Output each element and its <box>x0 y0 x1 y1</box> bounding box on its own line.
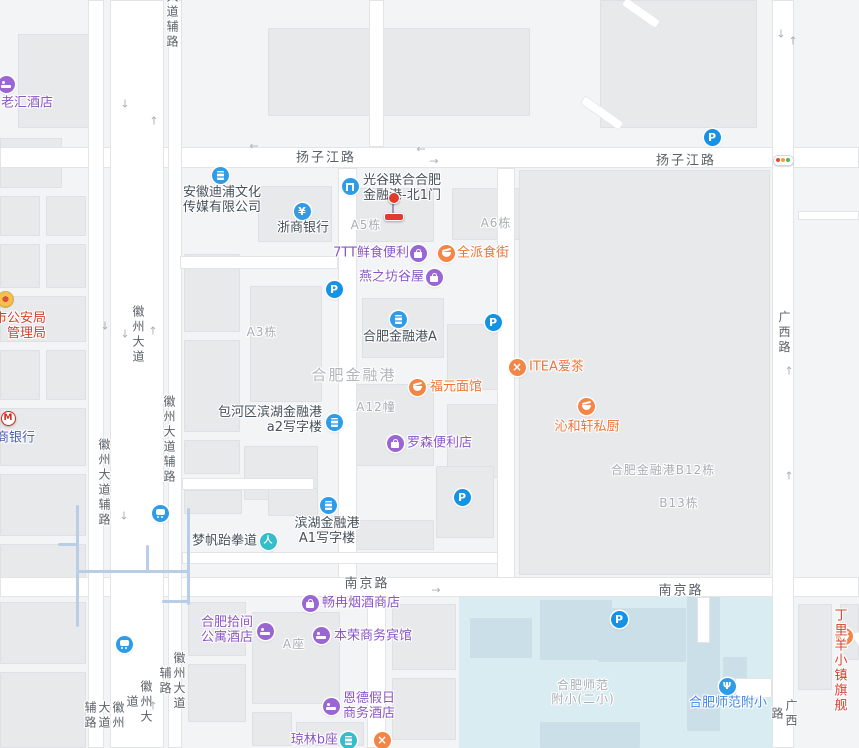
food-bowl-icon[interactable] <box>578 398 595 415</box>
metro-icon[interactable] <box>116 636 133 653</box>
road-label: 徽州大道辅路 <box>162 395 176 485</box>
poi-label[interactable]: 老汇酒店 <box>1 96 53 111</box>
building-block <box>46 196 86 236</box>
construction-line <box>76 505 79 627</box>
road <box>168 0 182 748</box>
poi-label[interactable]: 滨湖金融港 A1写字楼 <box>294 516 359 546</box>
building-label: A3栋 <box>247 325 278 339</box>
road-label: 扬子江路 <box>656 154 716 169</box>
poi-label[interactable]: 招商银行 <box>0 431 35 446</box>
building-label: A12幢 <box>356 400 395 414</box>
school-building <box>540 722 640 748</box>
building-block <box>392 678 456 740</box>
parking-icon[interactable]: P <box>485 314 502 331</box>
road <box>798 211 859 220</box>
direction-arrow-left: ← <box>249 141 258 152</box>
office-building-icon[interactable] <box>390 311 407 328</box>
poi-label[interactable]: 恩德假日 商务酒店 <box>343 691 395 721</box>
road-label: 广西路 <box>770 697 798 731</box>
building-label: 合肥金融港 <box>311 368 396 382</box>
direction-arrow-up: ↑ <box>784 471 793 482</box>
poi-label[interactable]: ITEA爱茶 <box>529 360 584 375</box>
building-label: A6栋 <box>481 216 512 230</box>
poi-label[interactable]: 包河区滨湖金融港 a2写字楼 <box>218 405 322 435</box>
parking-icon[interactable]: P <box>454 489 471 506</box>
direction-arrow-right: → <box>429 156 438 167</box>
road-label: 徽州大道辅路 <box>83 700 125 732</box>
poi-label[interactable]: 合肥金融港A <box>363 330 437 345</box>
parking-icon[interactable]: P <box>326 281 343 298</box>
direction-arrow-up: ↑ <box>149 116 158 127</box>
parking-icon[interactable]: P <box>611 611 628 628</box>
shop-bag-icon[interactable] <box>426 269 443 286</box>
building-block <box>18 34 90 128</box>
poi-label[interactable]: 合肥师范附小 <box>689 696 767 711</box>
shop-bag-icon[interactable] <box>302 595 319 612</box>
direction-arrow-down: ↓ <box>119 511 128 522</box>
direction-arrow-down: ↓ <box>120 99 129 110</box>
building-block <box>250 286 322 402</box>
building-block <box>184 490 242 514</box>
building-label: A座 <box>283 637 305 651</box>
road-label: 徽州大道辅路 <box>97 438 111 528</box>
construction-line <box>187 508 190 605</box>
fork-cross-icon[interactable]: × <box>509 359 526 376</box>
yen-icon[interactable]: ¥ <box>294 203 311 220</box>
direction-arrow-up: ↑ <box>784 366 793 377</box>
road <box>182 478 314 490</box>
building-block <box>46 350 86 400</box>
poi-label[interactable]: 7TT鲜食便利 <box>333 246 409 261</box>
building-block <box>268 488 318 516</box>
poi-label[interactable]: 市公安局 管理局 <box>0 311 46 341</box>
map-canvas[interactable]: 大道辅路扬子江路扬子江路徽州大道徽州大道辅路徽州大道辅路南京路南京路广西路广西路… <box>0 0 859 748</box>
poi-label[interactable]: 本荣商务宾馆 <box>334 629 412 644</box>
building-block <box>0 244 40 288</box>
marker-dot <box>388 192 400 204</box>
office-building-icon[interactable] <box>212 167 229 184</box>
office-building-icon[interactable] <box>326 414 343 431</box>
direction-arrow-down: ↓ <box>776 29 785 40</box>
road <box>180 256 338 269</box>
building-block <box>188 664 246 722</box>
construction-line <box>146 545 149 572</box>
marker-gate-bar <box>384 213 404 221</box>
school-building <box>470 618 532 658</box>
road-label: 广西路 <box>777 311 791 356</box>
direction-arrow-up: ↑ <box>148 701 157 712</box>
building-block <box>0 602 86 664</box>
bed-icon[interactable] <box>257 623 274 640</box>
building-block <box>0 474 86 536</box>
bed-icon[interactable] <box>323 698 340 715</box>
poi-label[interactable]: 畅冉烟酒商店 <box>322 596 400 611</box>
building-block <box>798 604 832 690</box>
bed-icon[interactable] <box>0 76 15 93</box>
parking-icon[interactable]: P <box>704 129 721 146</box>
fork-cross-icon[interactable]: × <box>374 732 391 748</box>
poi-label[interactable]: 光谷联合合肥 金融港-北1门 <box>363 173 441 203</box>
person-icon[interactable]: 人 <box>260 533 277 550</box>
road-label: 扬子江路 <box>296 151 356 166</box>
road-label: 南京路 <box>658 584 703 599</box>
poi-label[interactable]: 合肥拾间 公寓酒店 <box>201 615 253 645</box>
building-block <box>46 244 86 288</box>
school-icon[interactable]: Ψ <box>719 678 736 695</box>
building-block <box>0 672 86 748</box>
road-label: 徽州大道辅路 <box>158 648 186 715</box>
building-block <box>184 440 240 474</box>
building-block <box>252 712 292 746</box>
police-badge-icon[interactable] <box>0 292 13 307</box>
road <box>110 0 164 748</box>
poi-label[interactable]: 丁里羊 小镇旗舰 <box>832 609 850 714</box>
poi-label[interactable]: 浙商银行 <box>277 221 329 236</box>
direction-arrow-right: → <box>431 585 440 596</box>
construction-line <box>77 570 189 573</box>
poi-label[interactable]: 燕之坊谷屋 <box>359 270 424 285</box>
poi-label[interactable]: 安徽迪浦文化 传媒有限公司 <box>183 185 261 215</box>
direction-arrow-down: ↓ <box>100 321 109 332</box>
building-block <box>268 28 530 116</box>
road <box>367 597 386 748</box>
building-block <box>0 196 40 236</box>
poi-label[interactable]: 罗森便利店 <box>407 436 472 451</box>
building-label: B13栋 <box>659 496 699 510</box>
gate-icon[interactable] <box>342 178 359 195</box>
shop-bag-icon[interactable] <box>387 435 404 452</box>
building-block <box>362 298 444 358</box>
building-block <box>600 0 757 128</box>
poi-label[interactable]: 琼林b座 <box>291 733 338 748</box>
road-label: 南京路 <box>344 577 389 592</box>
direction-arrow-up: ↑ <box>788 36 797 47</box>
shop-bag-icon[interactable] <box>410 245 427 262</box>
direction-arrow-left: ← <box>416 144 425 155</box>
food-dish-icon[interactable] <box>438 245 455 262</box>
road <box>369 0 384 147</box>
poi-label[interactable]: 梦帆跆拳道 <box>192 534 257 549</box>
food-bowl-icon[interactable] <box>409 379 426 396</box>
poi-label[interactable]: 福元面馆 <box>430 380 482 395</box>
poi-label[interactable]: 全派食街 <box>457 246 509 261</box>
building-block <box>0 350 40 400</box>
building-label: A5栋 <box>351 218 382 232</box>
road-label: 徽州大道 <box>131 305 145 365</box>
traffic-light-icon <box>773 155 794 166</box>
poi-label[interactable]: 沁和轩私厨 <box>554 420 619 435</box>
direction-arrow-down: ↓ <box>120 329 129 340</box>
direction-arrow-up: ↑ <box>148 326 157 337</box>
construction-line <box>58 543 78 546</box>
cmb-logo-icon[interactable]: M <box>1 411 16 426</box>
bed-icon[interactable] <box>313 627 330 644</box>
metro-icon[interactable] <box>152 505 169 522</box>
office-building-icon[interactable] <box>320 497 337 514</box>
construction-line <box>162 600 189 603</box>
building-label: 合肥师范 附小(二小) <box>551 678 614 706</box>
building-icon[interactable] <box>340 732 357 748</box>
road <box>182 552 498 564</box>
building-label: 合肥金融港B12栋 <box>611 463 716 477</box>
road-label: 大道辅路 <box>165 0 179 50</box>
road <box>697 597 710 643</box>
road <box>88 0 104 748</box>
